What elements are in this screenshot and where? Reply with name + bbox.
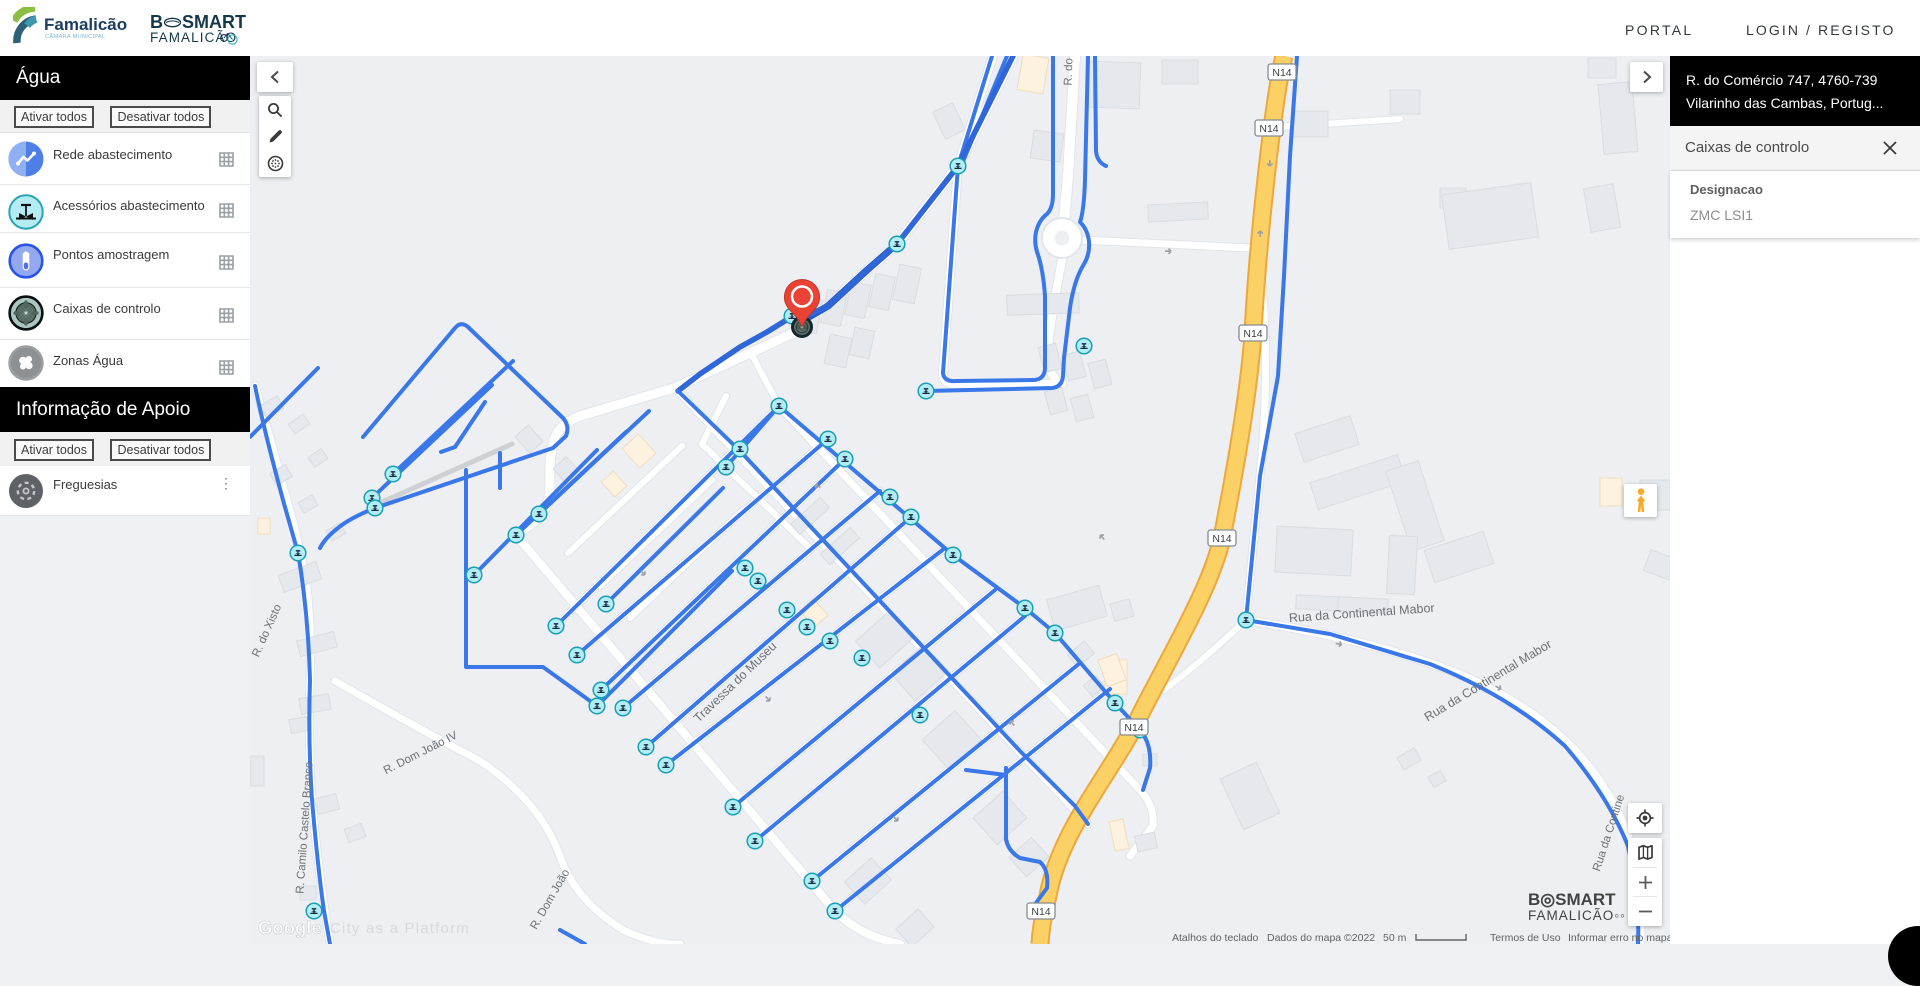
svg-text:Atalhos do teclado: Atalhos do teclado bbox=[1172, 932, 1259, 944]
svg-text:N14: N14 bbox=[1212, 533, 1231, 545]
svg-text:N14: N14 bbox=[1272, 67, 1291, 79]
svg-text:City as a Platform: City as a Platform bbox=[330, 920, 470, 937]
svg-text:FAMALICÃO◦◦: FAMALICÃO◦◦ bbox=[1528, 908, 1626, 923]
svg-text:N14: N14 bbox=[1259, 123, 1278, 135]
svg-text:Google: Google bbox=[258, 917, 322, 938]
svg-text:N14: N14 bbox=[1124, 722, 1143, 734]
svg-text:R. do: R. do bbox=[1063, 58, 1076, 86]
svg-text:50 m: 50 m bbox=[1383, 932, 1407, 944]
svg-text:Termos de Uso: Termos de Uso bbox=[1490, 932, 1561, 944]
svg-text:Dados do mapa ©2022: Dados do mapa ©2022 bbox=[1267, 932, 1375, 944]
svg-text:N14: N14 bbox=[1031, 906, 1050, 918]
svg-text:B◎SMART: B◎SMART bbox=[1528, 890, 1616, 909]
svg-text:N14: N14 bbox=[1243, 328, 1262, 340]
svg-text:Informar erro no mapa: Informar erro no mapa bbox=[1568, 932, 1670, 944]
